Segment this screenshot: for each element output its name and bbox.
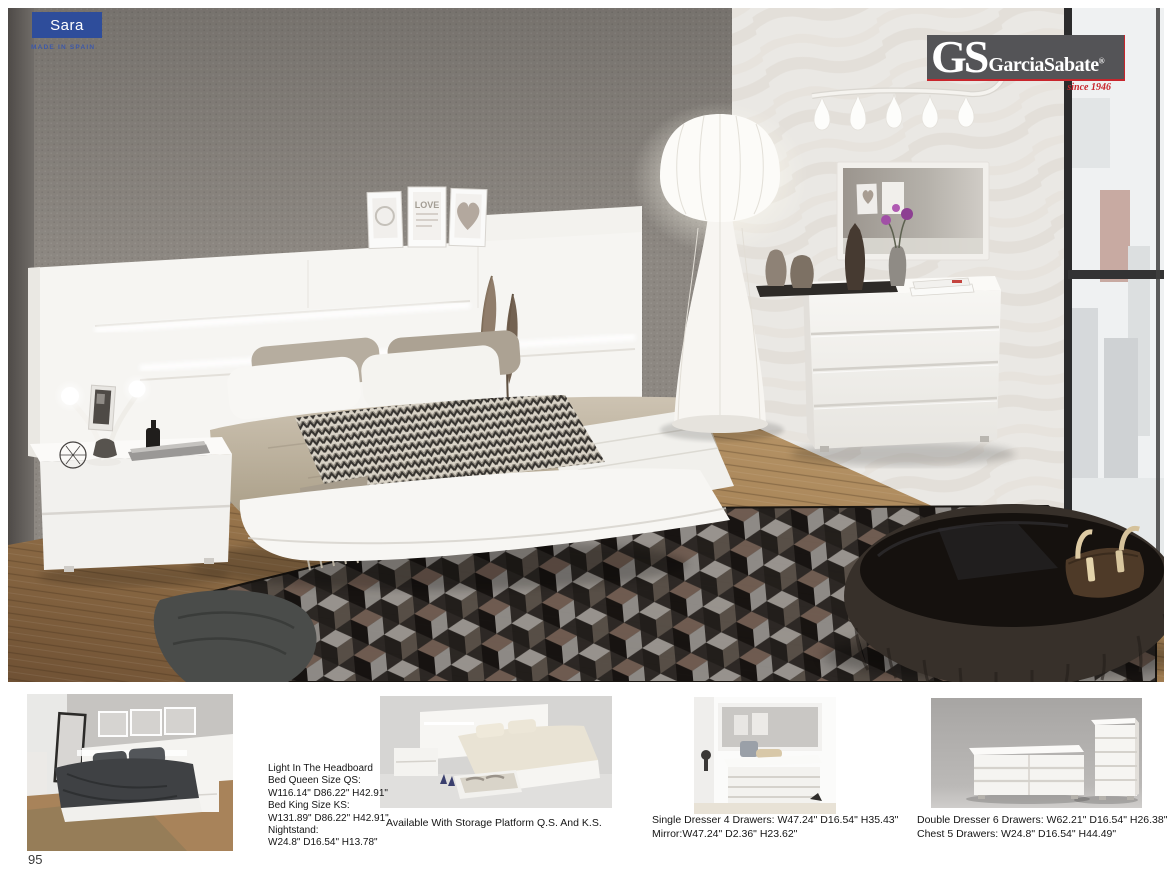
spec-line: Double Dresser 6 Drawers: W62.21" D16.54…: [917, 814, 1172, 828]
spec-line: Mirror:W47.24" D2.36" H23.62": [652, 828, 912, 842]
spec-line: Available With Storage Platform Q.S. And…: [386, 817, 656, 829]
nightstand-photo-frame: [88, 385, 115, 431]
floor-throw: [154, 590, 317, 682]
spec-line: Bed King Size KS:: [268, 800, 408, 812]
hero-room-photo: LOVE: [8, 8, 1164, 682]
spec-line: W24.8" D16.54" H13.78": [268, 837, 408, 849]
dresser: [791, 276, 1015, 466]
spec-double-dresser-chest: Double Dresser 6 Drawers: W62.21" D16.54…: [917, 814, 1172, 841]
headboard-picture-frames: LOVE: [367, 187, 487, 249]
collection-name: Sara: [50, 17, 84, 34]
thumb-storage-bed: [380, 696, 612, 808]
hero-scene: LOVE: [8, 8, 1164, 682]
thumb-dresser-mirror: [694, 697, 836, 814]
made-in-label: MADE IN SPAIN: [31, 44, 95, 51]
frame-love-text: LOVE: [415, 200, 440, 210]
brand-initials: GS: [931, 37, 986, 77]
catalog-page: LOVE: [0, 0, 1172, 890]
frame-love: LOVE: [408, 187, 446, 247]
frame-circle: [367, 191, 403, 248]
spec-line: Chest 5 Drawers: W24.8" D16.54" H44.49": [917, 828, 1172, 842]
spec-line: Light In The Headboard: [268, 763, 408, 775]
spec-line: Single Dresser 4 Drawers: W47.24" D16.54…: [652, 814, 912, 828]
spec-storage-platform: Available With Storage Platform Q.S. And…: [386, 817, 656, 829]
brand-logo-box: GS GarciaSabate®: [927, 35, 1125, 81]
thumb-bed-nightstand: [27, 694, 233, 851]
brand-name: GarciaSabate®: [988, 54, 1104, 77]
spec-bed-nightstand: Light In The Headboard Bed Queen Size QS…: [268, 763, 408, 850]
brand-since: since 1946: [927, 82, 1125, 93]
spec-single-dresser-mirror: Single Dresser 4 Drawers: W47.24" D16.54…: [652, 814, 912, 841]
brand-logo: GS GarciaSabate® since 1946: [927, 35, 1125, 93]
registered-mark-icon: ®: [1099, 56, 1104, 65]
spec-line: Bed Queen Size QS:: [268, 775, 408, 787]
spec-line: W116.14" D86.22" H42.91": [268, 788, 408, 800]
thumb-double-dresser-chest: [931, 698, 1142, 808]
page-number: 95: [28, 852, 42, 867]
collection-badge: Sara: [32, 12, 102, 38]
vase-taupe-2: [790, 255, 814, 288]
frame-heart: [449, 188, 487, 246]
